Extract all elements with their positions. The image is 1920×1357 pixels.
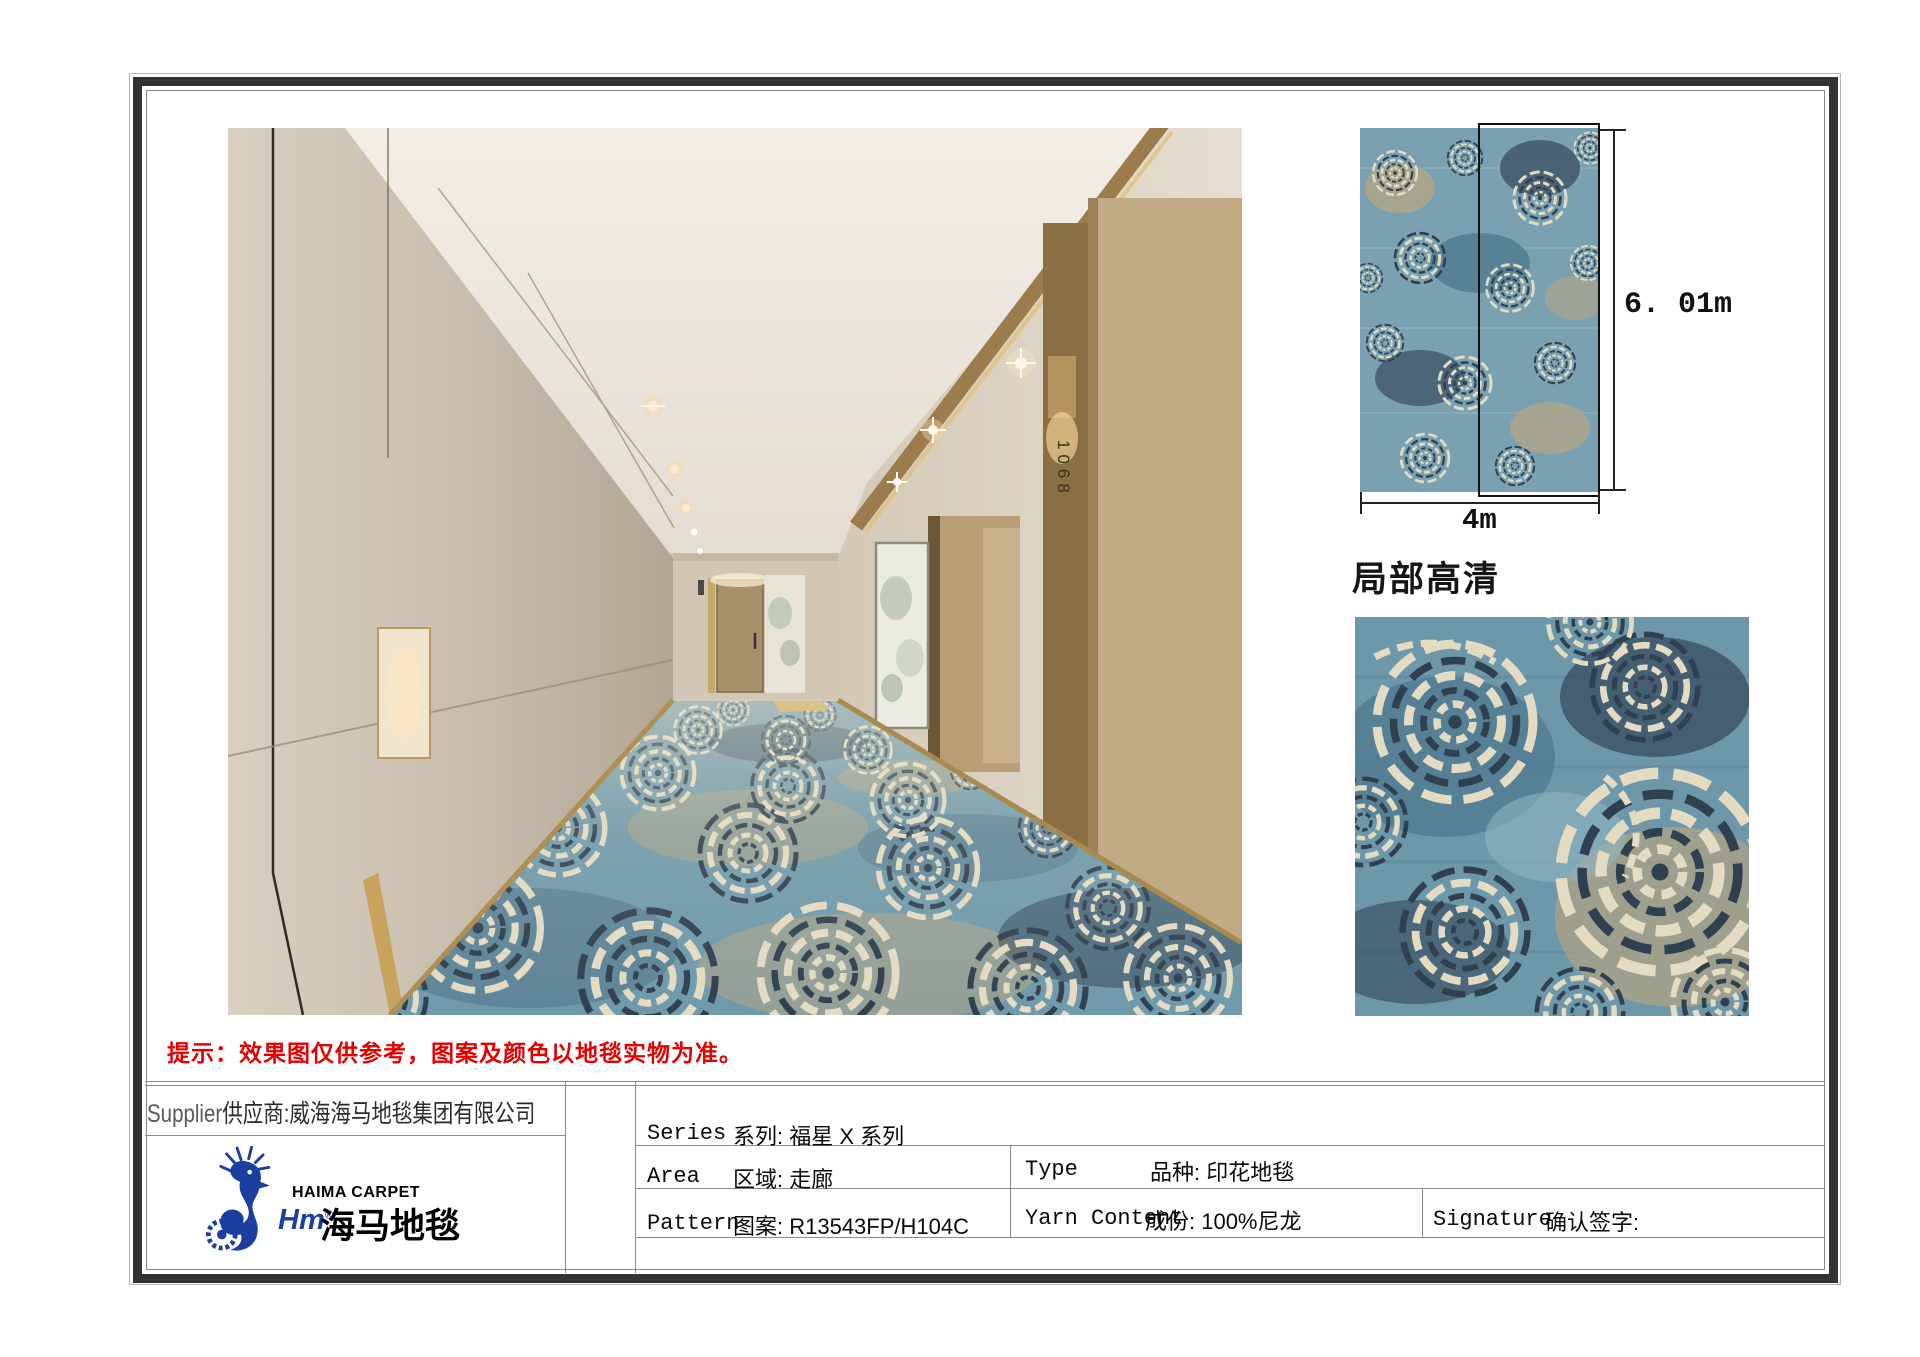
carpet-detail-image [1355, 617, 1749, 1016]
length-dimension-label: 6. 01m [1624, 288, 1732, 322]
supplier-underline [145, 1135, 565, 1136]
area-value: 区域: 走廊 [733, 1162, 833, 1194]
series-label: Series [647, 1121, 726, 1146]
type-label: Type [1025, 1157, 1078, 1182]
spacer-column-divider [635, 1081, 636, 1273]
corridor-render-image [228, 128, 1242, 1015]
supplier-label-en: Supplier [147, 1100, 222, 1128]
swatch-measure-rectangle [1478, 123, 1600, 497]
door-number: 1068 [1053, 440, 1073, 556]
table-top-rule-inner [145, 1085, 1825, 1086]
signature-label: Signature [1433, 1207, 1552, 1232]
brand-script-text: Hm [278, 1204, 325, 1236]
series-value: 系列: 福星 X 系列 [733, 1119, 904, 1151]
supplier-label-cn: 供应商:威海海马地毯集团有限公司 [222, 1100, 535, 1128]
pattern-label: Pattern [647, 1211, 739, 1236]
length-dimension-tick-top [1600, 129, 1626, 131]
brand-name-cn: 海马地毯 [320, 1198, 460, 1249]
signature-column-divider [1422, 1188, 1423, 1237]
pattern-value: 图案: R13543FP/H104C [733, 1209, 969, 1241]
width-dimension-tick-left [1360, 492, 1362, 514]
disclaimer-note: 提示：效果图仅供参考，图案及颜色以地毯实物为准。 [167, 1034, 743, 1068]
width-dimension-label: 4m [1462, 504, 1497, 537]
area-label: Area [647, 1164, 700, 1189]
type-column-divider [1010, 1145, 1011, 1237]
yarn-content-value: 成份: 100%尼龙 [1145, 1204, 1302, 1236]
spec-sheet-page: 1068 6. 01m 4m 局部高清 [0, 0, 1920, 1357]
haima-logo-seahorse-icon [193, 1146, 289, 1254]
length-dimension-tick-bottom [1600, 489, 1626, 491]
supplier-cell-divider [565, 1081, 566, 1273]
detail-section-heading: 局部高清 [1352, 551, 1500, 602]
table-top-rule-outer [145, 1081, 1825, 1082]
length-dimension-line [1613, 129, 1615, 491]
supplier-line: Supplier供应商:威海海马地毯集团有限公司 [147, 1094, 535, 1130]
width-dimension-tick-right [1598, 492, 1600, 514]
signature-field-label: 确认签字: [1545, 1205, 1639, 1237]
type-value: 品种: 印花地毯 [1150, 1155, 1294, 1187]
